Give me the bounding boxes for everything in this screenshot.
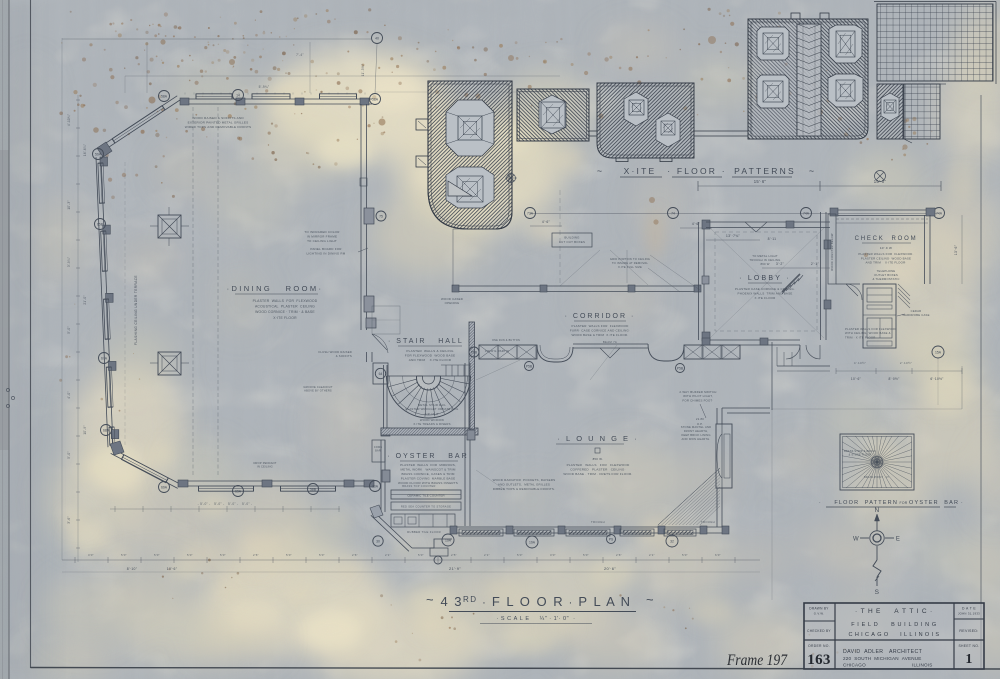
svg-text:40: 40 xyxy=(375,36,379,40)
svg-text:OPENING: OPENING xyxy=(445,301,460,305)
svg-text:WOOD BASE & TRIM X·ITE FLOOR·: WOOD BASE & TRIM X·ITE FLOOR· xyxy=(571,333,628,337)
svg-text:& STONE FLOOR: & STONE FLOOR xyxy=(849,453,872,456)
svg-text:FOR: FOR xyxy=(899,501,907,505)
svg-text:FLOOR PATTERN: FLOOR PATTERN xyxy=(834,500,898,506)
svg-text:3'-9⅞": 3'-9⅞" xyxy=(67,257,71,267)
svg-text:EXTERIOR PAINTED METAL GRILLES: EXTERIOR PAINTED METAL GRILLES xyxy=(188,121,249,125)
svg-text:FURR· CASE CORNICE AND CEILING: FURR· CASE CORNICE AND CEILING· xyxy=(570,329,630,333)
svg-text:PLASTER COVING MARBLE BASE: PLASTER COVING MARBLE BASE xyxy=(401,477,456,481)
svg-text:C H I C A G O I L L I N O: C H I C A G O I L L I N O I S xyxy=(849,632,940,638)
svg-text:8'·0½": 8'·0½" xyxy=(888,377,900,381)
svg-text:GROOVE CLEANOUT: GROOVE CLEANOUT xyxy=(303,385,332,389)
svg-text:PLASTER WALLS FOR FLEXWOOD: PLASTER WALLS FOR FLEXWOOD xyxy=(572,324,630,328)
svg-text:BRASS TOP COUNTER: BRASS TOP COUNTER xyxy=(402,484,435,488)
svg-text:LIGHTING IN DINING RM: LIGHTING IN DINING RM xyxy=(306,251,345,255)
svg-text:~: ~ xyxy=(597,166,603,176)
svg-text:5'0": 5'0" xyxy=(418,553,424,557)
svg-text:5'0": 5'0" xyxy=(583,553,589,557)
svg-text:163: 163 xyxy=(807,652,830,668)
svg-text:21.80: 21.80 xyxy=(696,417,704,421)
svg-text:SHEET NO.: SHEET NO. xyxy=(959,644,980,648)
svg-text:FOR FLEXWOOD WOOD BASE: FOR FLEXWOOD WOOD BASE xyxy=(405,354,456,358)
svg-text:PS: PS xyxy=(609,537,614,541)
svg-text:REVISED:: REVISED: xyxy=(959,629,978,633)
svg-text:G.V.W.: G.V.W. xyxy=(814,612,824,616)
svg-text:WOOD COUNTER BELOW: WOOD COUNTER BELOW xyxy=(830,233,834,271)
svg-text:CERAMIC TILE COUNTER: CERAMIC TILE COUNTER xyxy=(407,494,444,498)
svg-text:JOHN 31,1933: JOHN 31,1933 xyxy=(958,612,980,616)
svg-text:32: 32 xyxy=(670,539,674,543)
svg-text:19A: 19A xyxy=(529,540,536,544)
svg-text:15'·6": 15'·6" xyxy=(754,179,767,184)
svg-text:FLASHING CEILING UNDER TERRACE: FLASHING CEILING UNDER TERRACE xyxy=(134,275,138,345)
svg-text:13'·7¾": 13'·7¾" xyxy=(726,234,741,238)
svg-text:AND TRIM X·ITE FLOOR·: AND TRIM X·ITE FLOOR· xyxy=(865,261,906,265)
svg-text:8'·11: 8'·11 xyxy=(768,237,777,241)
svg-text:& SOFFITS: & SOFFITS xyxy=(336,354,352,358)
svg-text:74A: 74A xyxy=(803,211,810,215)
svg-text:59A: 59A xyxy=(95,152,102,156)
svg-text:10'-3": 10'-3" xyxy=(67,200,71,209)
svg-text:16'-6⅞": 16'-6⅞" xyxy=(83,144,87,156)
svg-text:· CORRIDOR ·: · CORRIDOR · xyxy=(565,313,636,320)
svg-text:Frame 197: Frame 197 xyxy=(726,652,788,669)
svg-text:X·ITE: X·ITE xyxy=(624,166,657,176)
svg-text:BEAM 7A: BEAM 7A xyxy=(603,340,617,344)
svg-text:3'0": 3'0" xyxy=(88,553,94,557)
svg-text:TO INSURE AT REMOVAL: TO INSURE AT REMOVAL xyxy=(612,261,649,265)
svg-text:E: E xyxy=(896,537,900,543)
svg-text:DAVID ADLER ARCHITECT: DAVID ADLER ARCHITECT xyxy=(843,649,923,655)
svg-text:58A: 58A xyxy=(161,94,168,98)
svg-text:69A: 69A xyxy=(235,489,242,493)
svg-text:FOLD'G PART'N: FOLD'G PART'N xyxy=(485,349,509,353)
svg-text:58A: 58A xyxy=(372,97,379,101)
svg-text:6'0": 6'0" xyxy=(715,553,721,557)
svg-text:- 5'-0" - 5'-0" - 5'-0" -: - 5'-0" - 5'-0" - 5'-0" - 5'-0" - xyxy=(198,502,253,506)
svg-text:BAR: BAR xyxy=(375,449,381,452)
svg-text:30A: 30A xyxy=(372,484,379,488)
svg-text:4'·6": 4'·6" xyxy=(692,222,701,226)
svg-text:11'-5⅝": 11'-5⅝" xyxy=(361,64,365,77)
svg-text:68A: 68A xyxy=(103,428,110,432)
svg-text:1: 1 xyxy=(965,652,972,667)
svg-text:PLASTER WALLS FOR FLEXWO: PLASTER WALLS FOR FLEXWOOD xyxy=(567,463,630,467)
svg-text:CHECKED BY: CHECKED BY xyxy=(807,629,831,633)
svg-text:10'·6": 10'·6" xyxy=(167,567,178,571)
svg-text:TRIM · X·ITE FLOOR·: TRIM · X·ITE FLOOR· xyxy=(845,335,877,339)
svg-text:58B: 58B xyxy=(310,487,317,491)
svg-text:IN CEILING: IN CEILING xyxy=(257,465,273,469)
svg-text:TO INFRARED COLOR: TO INFRARED COLOR xyxy=(304,230,340,234)
svg-text:WOOD RADIATOR POCKETS, RAISER: WOOD RADIATOR POCKETS, RAISERS xyxy=(493,478,556,482)
svg-text:· FLOOR ·: · FLOOR · xyxy=(667,166,726,176)
svg-text:UP 15 R: UP 15 R xyxy=(425,412,439,416)
svg-text:~: ~ xyxy=(426,592,434,607)
svg-text:ACOUSTICAL PLASTER CEILING: ACOUSTICAL PLASTER CEILING xyxy=(255,305,315,309)
svg-text:5'0": 5'0" xyxy=(517,553,523,557)
svg-text:220 SOUTH MICHIGAN AVENUE: 220 SOUTH MICHIGAN AVENUE xyxy=(843,656,922,661)
svg-text:P5B: P5B xyxy=(471,350,478,354)
svg-text:ILLINOIS: ILLINOIS xyxy=(912,663,933,668)
svg-text:5'0": 5'0" xyxy=(220,553,226,557)
svg-text:X·ITE FULL SIZE: X·ITE FULL SIZE xyxy=(618,265,642,269)
svg-text:METAL WORK WAINSCOT & TRIM: METAL WORK WAINSCOT & TRIM xyxy=(400,468,455,472)
svg-text:X·ITE FLOOR: X·ITE FLOOR xyxy=(754,296,776,300)
svg-text:BRASS POINT · LT·: BRASS POINT · LT· xyxy=(864,476,890,479)
svg-text:65B: 65B xyxy=(97,222,104,226)
svg-text:OYSTER BAR: OYSTER BAR xyxy=(909,500,959,506)
svg-text:~: ~ xyxy=(809,166,815,176)
svg-text:5'0": 5'0" xyxy=(154,553,160,557)
svg-text:4'-0": 4'-0" xyxy=(67,391,71,398)
svg-text:5'0": 5'0" xyxy=(319,553,325,557)
svg-text:PANEL BOARD FOR: PANEL BOARD FOR xyxy=(310,247,342,251)
svg-text:COFFERED PLASTER CEILING·: COFFERED PLASTER CEILING· xyxy=(570,468,625,472)
svg-text:STONE MANTEL AND: STONE MANTEL AND xyxy=(681,425,711,429)
svg-text:2'6": 2'6" xyxy=(253,553,259,557)
svg-text:WARDROBE CASE: WARDROBE CASE xyxy=(902,313,929,317)
svg-text:N: N xyxy=(875,507,880,514)
svg-text:PATTERNS: PATTERNS xyxy=(734,166,796,176)
svg-text:PLASTER CASE CORNICE & CEILING: PLASTER CASE CORNICE & CEILING· xyxy=(735,287,795,291)
svg-text:X·ITE TREADS & RISERS: X·ITE TREADS & RISERS xyxy=(413,422,450,426)
svg-text:20'·6": 20'·6" xyxy=(604,566,616,571)
svg-text:PHOENIX WALLS TRIM AND BASE: PHOENIX WALLS TRIM AND BASE xyxy=(738,292,793,296)
svg-text:13'·6": 13'·6" xyxy=(954,244,958,255)
svg-text:69A: 69A xyxy=(161,485,168,489)
svg-text:2'1": 2'1" xyxy=(649,553,655,557)
svg-text:· OYSTER BAR: · OYSTER BAR xyxy=(387,453,468,460)
svg-text:· S C A L E ¼" · 1'· 0" ·: · S C A L E ¼" · 1'· 0" · xyxy=(497,616,576,622)
svg-text:74A: 74A xyxy=(936,211,943,215)
svg-text:5'0": 5'0" xyxy=(682,553,688,557)
svg-text:IN MIRROR FRAME: IN MIRROR FRAME xyxy=(307,234,337,238)
svg-text:DROP PENDANT: DROP PENDANT xyxy=(253,461,276,465)
svg-text:860 W: 860 W xyxy=(760,262,769,266)
svg-text:2'·1": 2'·1" xyxy=(811,262,820,266)
svg-text:21'·9": 21'·9" xyxy=(449,566,461,571)
svg-text:TO CEILING LIGHT: TO CEILING LIGHT xyxy=(307,239,337,243)
svg-text:5'0": 5'0" xyxy=(187,553,193,557)
svg-text:74: 74 xyxy=(671,211,675,215)
svg-text:F I E L D B U I L D I N G: F I E L D B U I L D I N G xyxy=(851,622,937,628)
svg-text:ABOVE BY OTHERS: ABOVE BY OTHERS xyxy=(304,389,332,393)
svg-text:KEEP BRICK LINING: KEEP BRICK LINING xyxy=(681,433,710,437)
svg-text:7'-4": 7'-4" xyxy=(296,53,304,57)
svg-text:10'-9": 10'-9" xyxy=(83,425,87,434)
svg-text:73A: 73A xyxy=(527,211,534,215)
svg-text:2'6": 2'6" xyxy=(616,553,622,557)
svg-text:BUILDING: BUILDING xyxy=(564,236,580,240)
svg-text:2'5": 2'5" xyxy=(451,553,457,557)
svg-text:64: 64 xyxy=(379,372,383,376)
svg-text:AND OUTLETS, METAL GRILLES: AND OUTLETS, METAL GRILLES xyxy=(498,482,550,486)
svg-text:3'0": 3'0" xyxy=(550,553,556,557)
svg-text:P5B: P5B xyxy=(677,366,684,370)
svg-text:4'·6": 4'·6" xyxy=(542,220,551,224)
svg-text:ORDER NO.: ORDER NO. xyxy=(808,644,830,648)
svg-text:4'-10¾": 4'-10¾" xyxy=(67,114,71,126)
svg-text:CHECK ROOM: CHECK ROOM xyxy=(855,236,918,242)
svg-text:2'6": 2'6" xyxy=(352,553,358,557)
svg-text:10'·9 W: 10'·9 W xyxy=(880,246,892,250)
svg-text:850 W·: 850 W· xyxy=(593,457,604,461)
svg-text:8'·10": 8'·10" xyxy=(127,567,138,571)
svg-text:5'0": 5'0" xyxy=(286,553,292,557)
svg-text:PLASTER WROUGHT ORNATE RAIL: PLASTER WROUGHT ORNATE RAIL xyxy=(406,407,459,411)
svg-text:AND IRON HEARTH·: AND IRON HEARTH· xyxy=(682,437,711,441)
svg-text:21'-0": 21'-0" xyxy=(83,295,87,304)
svg-text:CUT OUT BOXES: CUT OUT BOXES xyxy=(559,240,585,244)
svg-text:5'-0": 5'-0" xyxy=(67,326,71,333)
svg-text:PLASTER WALLS FOR FLEXWOOD: PLASTER WALLS FOR FLEXWOOD xyxy=(253,299,318,303)
svg-text:FOR CHIMES FOOT·: FOR CHIMES FOOT· xyxy=(682,398,713,402)
svg-text:RIBBED TOPS & REMOVABLE FRONTS: RIBBED TOPS & REMOVABLE FRONTS· xyxy=(493,487,556,491)
svg-text:· STAIR HALL ·: · STAIR HALL · xyxy=(388,338,472,345)
svg-text:TROUGH: TROUGH xyxy=(591,520,605,524)
svg-text:67A: 67A xyxy=(101,356,108,360)
svg-text:30: 30 xyxy=(376,539,380,543)
svg-text:BRASS CORNICE, CASES & TRIM: BRASS CORNICE, CASES & TRIM xyxy=(401,472,454,476)
svg-text:CHICAGO: CHICAGO xyxy=(843,663,866,668)
svg-text:RUBBER TILE FLOOR: RUBBER TILE FLOOR xyxy=(407,530,441,534)
svg-text:3'-6": 3'-6" xyxy=(67,516,71,523)
svg-text:D A T E: D A T E xyxy=(962,607,976,611)
svg-text:RED SEA COUNTER TO STORAGE: RED SEA COUNTER TO STORAGE xyxy=(401,505,451,509)
svg-text:4'·10½": 4'·10½" xyxy=(854,361,866,365)
svg-text:2'1": 2'1" xyxy=(385,553,391,557)
svg-text:AND TRIM X·ITE FLOOR: AND TRIM X·ITE FLOOR xyxy=(409,358,452,362)
svg-text:2'1": 2'1" xyxy=(484,553,490,557)
svg-text:PLASTER WALLS FOR MIRRORS,: PLASTER WALLS FOR MIRRORS, xyxy=(400,463,456,467)
svg-text:FRONT HEARTH,: FRONT HEARTH, xyxy=(684,429,708,433)
svg-text:WOOD CORNICE · TRIM · & BASE: WOOD CORNICE · TRIM · & BASE xyxy=(255,310,315,314)
svg-text:6'·10½": 6'·10½" xyxy=(930,377,944,381)
svg-text:P5B: P5B xyxy=(526,364,533,368)
svg-text:· T H E A T T I C ·: · T H E A T T I C · xyxy=(855,608,933,615)
svg-text:3'·2": 3'·2" xyxy=(776,262,785,266)
svg-text:·DINING ROOM·: ·DINING ROOM· xyxy=(227,284,324,293)
svg-text:5'0": 5'0" xyxy=(121,553,127,557)
svg-text:·: · xyxy=(961,500,963,506)
svg-text:5'-0": 5'-0" xyxy=(67,451,71,458)
svg-text:GRID PORTION TO CEILING: GRID PORTION TO CEILING xyxy=(610,257,650,261)
svg-text:& THERMOSTATIC: & THERMOSTATIC xyxy=(872,277,899,281)
svg-text:W: W xyxy=(853,537,859,543)
svg-text:~: ~ xyxy=(646,592,654,607)
svg-text:WIRED TOPS AND REMOVABLE FRONT: WIRED TOPS AND REMOVABLE FRONTS xyxy=(185,125,252,129)
svg-text:ONE RUN & BUTTON: ONE RUN & BUTTON xyxy=(492,339,520,342)
svg-text:WOOD BASE · TRIM · FRETS FOR F: WOOD BASE · TRIM · FRETS FOR FLOOR· xyxy=(563,472,632,476)
svg-text:WOOD RAISED & SOFFITS AND: WOOD RAISED & SOFFITS AND xyxy=(192,116,244,120)
svg-text:·: · xyxy=(819,500,821,506)
svg-text:2'·10½": 2'·10½" xyxy=(900,361,912,365)
svg-text:10'·6": 10'·6" xyxy=(851,377,862,381)
svg-text:19A: 19A xyxy=(445,538,452,542)
svg-text:75: 75 xyxy=(379,214,383,218)
svg-text:DRAWN BY: DRAWN BY xyxy=(809,607,829,611)
svg-text:PLASTER WALLS & CEILING: PLASTER WALLS & CEILING xyxy=(406,349,454,353)
svg-text:15A: 15A xyxy=(935,350,942,354)
svg-text:14: 14 xyxy=(236,93,240,97)
svg-text:· L O U N G E ·: · L O U N G E · xyxy=(557,434,638,443)
svg-text:5'-9¼": 5'-9¼" xyxy=(259,85,270,89)
svg-text:S: S xyxy=(875,589,880,596)
svg-text:X·ITE FLOOR: X·ITE FLOOR xyxy=(273,316,297,320)
